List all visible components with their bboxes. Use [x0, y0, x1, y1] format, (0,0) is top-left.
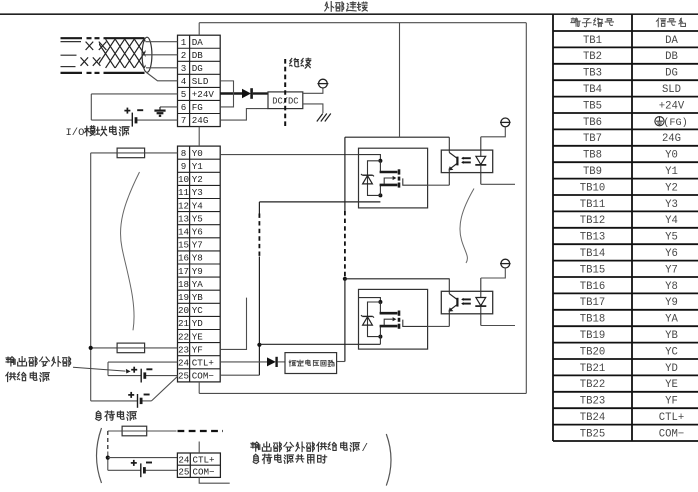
svg-text:Y4: Y4 [665, 215, 678, 227]
svg-text:TB7: TB7 [583, 133, 602, 145]
svg-text:TB16: TB16 [580, 281, 605, 293]
svg-text:23: 23 [178, 344, 189, 355]
svg-text:25: 25 [178, 371, 189, 382]
svg-text:20: 20 [178, 305, 189, 316]
svg-text:YD: YD [192, 318, 204, 329]
svg-text:4: 4 [181, 76, 187, 87]
svg-text:TB4: TB4 [583, 84, 602, 96]
svg-text:YC: YC [192, 305, 204, 316]
svg-text:SLD: SLD [662, 84, 681, 96]
svg-text:TB8: TB8 [583, 150, 602, 162]
svg-text:10: 10 [178, 174, 189, 185]
svg-text:TB9: TB9 [583, 166, 602, 178]
svg-text:5: 5 [181, 89, 187, 100]
svg-text:Y3: Y3 [192, 187, 203, 198]
svg-text:TB17: TB17 [580, 297, 605, 309]
svg-text:TB23: TB23 [580, 396, 605, 408]
svg-text:TB13: TB13 [580, 232, 605, 244]
svg-text:Y5: Y5 [665, 232, 678, 244]
svg-text:TB12: TB12 [580, 215, 605, 227]
svg-text:TB3: TB3 [583, 68, 602, 80]
svg-text:TB19: TB19 [580, 330, 605, 342]
svg-text:/: / [362, 443, 369, 455]
svg-text:TB18: TB18 [580, 314, 605, 326]
svg-text:Y2: Y2 [665, 182, 678, 194]
svg-text:TB24: TB24 [580, 412, 605, 424]
svg-text:YF: YF [665, 396, 678, 408]
svg-text:YB: YB [665, 330, 678, 342]
svg-text:Y0: Y0 [192, 148, 203, 159]
svg-text:Y1: Y1 [665, 166, 678, 178]
svg-text:24G: 24G [662, 133, 681, 145]
svg-text:YA: YA [665, 314, 678, 326]
svg-text:DA: DA [665, 35, 678, 47]
svg-text:11: 11 [178, 187, 190, 198]
svg-text:TB25: TB25 [580, 428, 605, 440]
svg-text:COM−: COM− [193, 467, 215, 478]
svg-text:SLD: SLD [192, 76, 209, 87]
svg-text:COM−: COM− [192, 371, 214, 382]
svg-text:16: 16 [178, 253, 189, 264]
svg-text:YC: YC [665, 346, 678, 358]
svg-text:Y9: Y9 [665, 297, 678, 309]
svg-text:22: 22 [178, 331, 189, 342]
svg-text:1: 1 [181, 37, 187, 48]
svg-text:+24V: +24V [192, 89, 215, 100]
svg-text:YE: YE [192, 331, 204, 342]
svg-text:24: 24 [178, 454, 190, 465]
svg-text:TB1: TB1 [583, 35, 602, 47]
svg-text:Y9: Y9 [192, 266, 203, 277]
svg-text:19: 19 [178, 292, 189, 303]
svg-text:YB: YB [192, 292, 204, 303]
svg-text:17: 17 [178, 266, 189, 277]
svg-text:YA: YA [192, 279, 204, 290]
svg-text:13: 13 [178, 213, 189, 224]
svg-text:7: 7 [181, 115, 187, 126]
svg-text:Y7: Y7 [192, 240, 203, 251]
svg-text:12: 12 [178, 200, 189, 211]
svg-text:Y6: Y6 [192, 226, 203, 237]
svg-text:(FG): (FG) [663, 117, 687, 129]
svg-text:TB11: TB11 [580, 199, 605, 211]
svg-text:CTL+: CTL+ [659, 412, 684, 424]
svg-text:Y5: Y5 [192, 213, 203, 224]
svg-text:YF: YF [192, 344, 203, 355]
svg-text:YE: YE [665, 379, 678, 391]
svg-text:9: 9 [181, 161, 187, 172]
svg-text:TB10: TB10 [580, 182, 605, 194]
svg-text:CTL+: CTL+ [192, 357, 214, 368]
svg-text:24: 24 [178, 357, 190, 368]
svg-text:DA: DA [192, 37, 204, 48]
svg-text:TB15: TB15 [580, 264, 605, 276]
svg-text:Y8: Y8 [192, 253, 203, 264]
svg-text:TB22: TB22 [580, 379, 605, 391]
svg-text:COM−: COM− [659, 428, 684, 440]
svg-text:DB: DB [665, 51, 678, 63]
svg-text:6: 6 [181, 102, 187, 113]
svg-text:TB20: TB20 [580, 346, 605, 358]
svg-text:TB14: TB14 [580, 248, 605, 260]
svg-text:I/O: I/O [66, 127, 85, 139]
svg-text:TB5: TB5 [583, 100, 602, 112]
svg-text:Y4: Y4 [192, 200, 204, 211]
svg-text:Y3: Y3 [665, 199, 678, 211]
svg-text:DG: DG [665, 68, 678, 80]
svg-text:DG: DG [192, 63, 203, 74]
svg-text:3: 3 [181, 63, 187, 74]
svg-text:Y1: Y1 [192, 161, 204, 172]
svg-text:14: 14 [178, 226, 190, 237]
svg-text:8: 8 [181, 148, 187, 159]
svg-text:2: 2 [181, 50, 187, 61]
svg-text:24G: 24G [192, 115, 209, 126]
svg-text:Y0: Y0 [665, 150, 678, 162]
svg-text:TB6: TB6 [583, 117, 602, 129]
svg-text:FG: FG [192, 102, 203, 113]
svg-text:15: 15 [178, 240, 189, 251]
svg-text:+24V: +24V [659, 100, 685, 112]
svg-text:Y7: Y7 [665, 264, 678, 276]
svg-text:CTL+: CTL+ [193, 454, 215, 465]
svg-text:21: 21 [178, 318, 190, 329]
svg-text:DB: DB [192, 50, 204, 61]
svg-text:Y2: Y2 [192, 174, 203, 185]
svg-text:Y6: Y6 [665, 248, 678, 260]
svg-text:TB21: TB21 [580, 363, 605, 375]
svg-text:18: 18 [178, 279, 189, 290]
svg-text:25: 25 [178, 467, 189, 478]
svg-text:YD: YD [665, 363, 678, 375]
svg-text:Y8: Y8 [665, 281, 678, 293]
svg-text:TB2: TB2 [583, 51, 602, 63]
